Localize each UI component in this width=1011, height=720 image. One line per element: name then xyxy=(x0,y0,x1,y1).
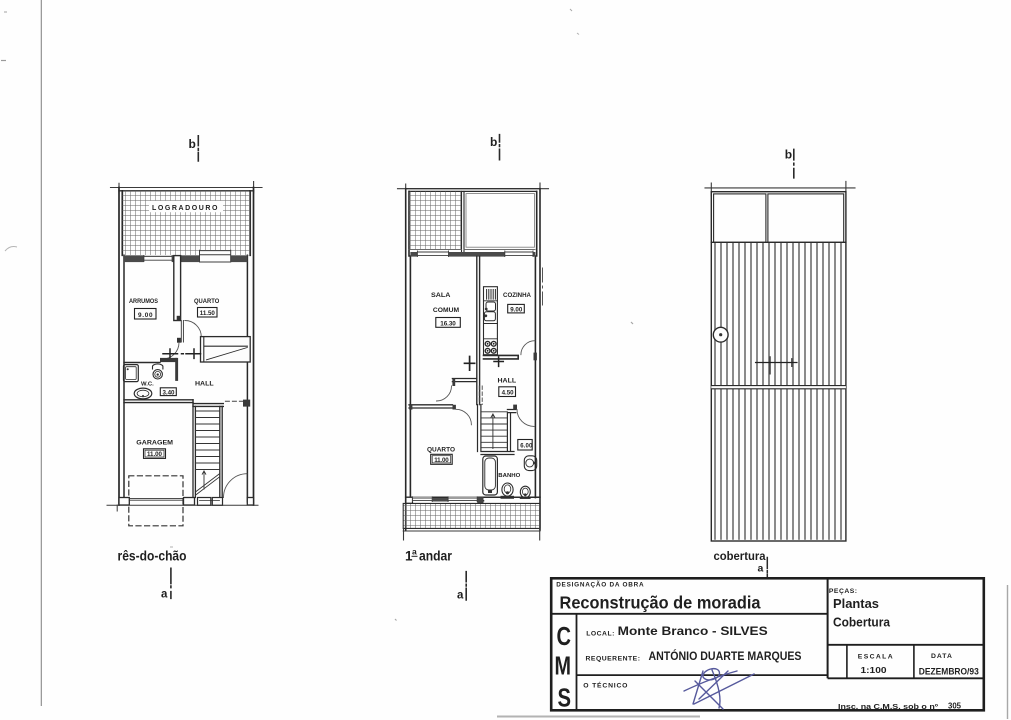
svg-text:S: S xyxy=(558,683,572,713)
svg-text:a: a xyxy=(412,547,417,557)
svg-text:b: b xyxy=(189,137,196,151)
svg-text:QUARTO: QUARTO xyxy=(194,298,219,305)
svg-text:LOCAL:: LOCAL: xyxy=(586,631,615,638)
svg-text:rês-do-chão: rês-do-chão xyxy=(118,549,187,564)
svg-text:GARAGEM: GARAGEM xyxy=(136,439,173,446)
svg-text:Reconstrução de moradia: Reconstrução de moradia xyxy=(560,593,761,613)
svg-text:11.50: 11.50 xyxy=(200,310,216,317)
svg-text:SALA: SALA xyxy=(431,292,451,299)
svg-text:COMUM: COMUM xyxy=(433,307,459,314)
svg-text:DESIGNAÇÃO DA OBRA: DESIGNAÇÃO DA OBRA xyxy=(556,580,644,589)
svg-text:andar: andar xyxy=(419,549,453,564)
svg-text:LOGRADOURO: LOGRADOURO xyxy=(152,205,219,212)
svg-text:6.00: 6.00 xyxy=(520,444,533,450)
svg-text:COZINHA: COZINHA xyxy=(503,292,531,299)
svg-text:9.00: 9.00 xyxy=(138,312,153,319)
svg-text:Plantas: Plantas xyxy=(833,597,879,611)
svg-text:C: C xyxy=(557,621,572,651)
svg-text:DEZEMBRO/93: DEZEMBRO/93 xyxy=(919,667,979,677)
svg-text:b: b xyxy=(785,148,792,162)
svg-text:ANTÓNIO DUARTE MARQUES: ANTÓNIO DUARTE MARQUES xyxy=(649,648,802,663)
svg-text:a: a xyxy=(758,563,764,575)
svg-text:W.C.: W.C. xyxy=(141,381,154,387)
svg-text:11.00: 11.00 xyxy=(147,451,163,458)
svg-text:3.40: 3.40 xyxy=(163,389,176,396)
svg-text:ESCALA: ESCALA xyxy=(858,653,894,660)
svg-text:HALL: HALL xyxy=(195,381,214,388)
svg-text:DATA: DATA xyxy=(931,653,953,660)
svg-text:4.50: 4.50 xyxy=(502,390,515,397)
svg-text:Monte Branco - SILVES: Monte Branco - SILVES xyxy=(618,624,768,638)
svg-text:a: a xyxy=(161,589,168,601)
svg-text:ARRUMOS: ARRUMOS xyxy=(129,298,159,305)
svg-text:9.00: 9.00 xyxy=(510,306,523,313)
svg-text:Insc. na C.M.S. sob o nº: Insc. na C.M.S. sob o nº xyxy=(838,702,938,711)
svg-text:O TÉCNICO: O TÉCNICO xyxy=(583,681,628,690)
svg-text:Cobertura: Cobertura xyxy=(833,616,891,630)
svg-text:M: M xyxy=(555,651,572,681)
svg-text:b: b xyxy=(490,135,497,149)
svg-text:QUARTO: QUARTO xyxy=(427,446,455,453)
svg-text:HALL: HALL xyxy=(498,378,517,385)
svg-text:BANHO: BANHO xyxy=(498,473,520,479)
svg-text:cobertura: cobertura xyxy=(714,551,767,563)
svg-text:11.00: 11.00 xyxy=(434,457,449,464)
svg-text:REQUERENTE:: REQUERENTE: xyxy=(586,655,641,662)
svg-text:1:100: 1:100 xyxy=(861,665,887,675)
svg-text:305: 305 xyxy=(948,701,962,710)
svg-text:a: a xyxy=(457,590,464,602)
svg-text:PEÇAS:: PEÇAS: xyxy=(829,588,858,595)
svg-text:16.30: 16.30 xyxy=(440,320,456,327)
